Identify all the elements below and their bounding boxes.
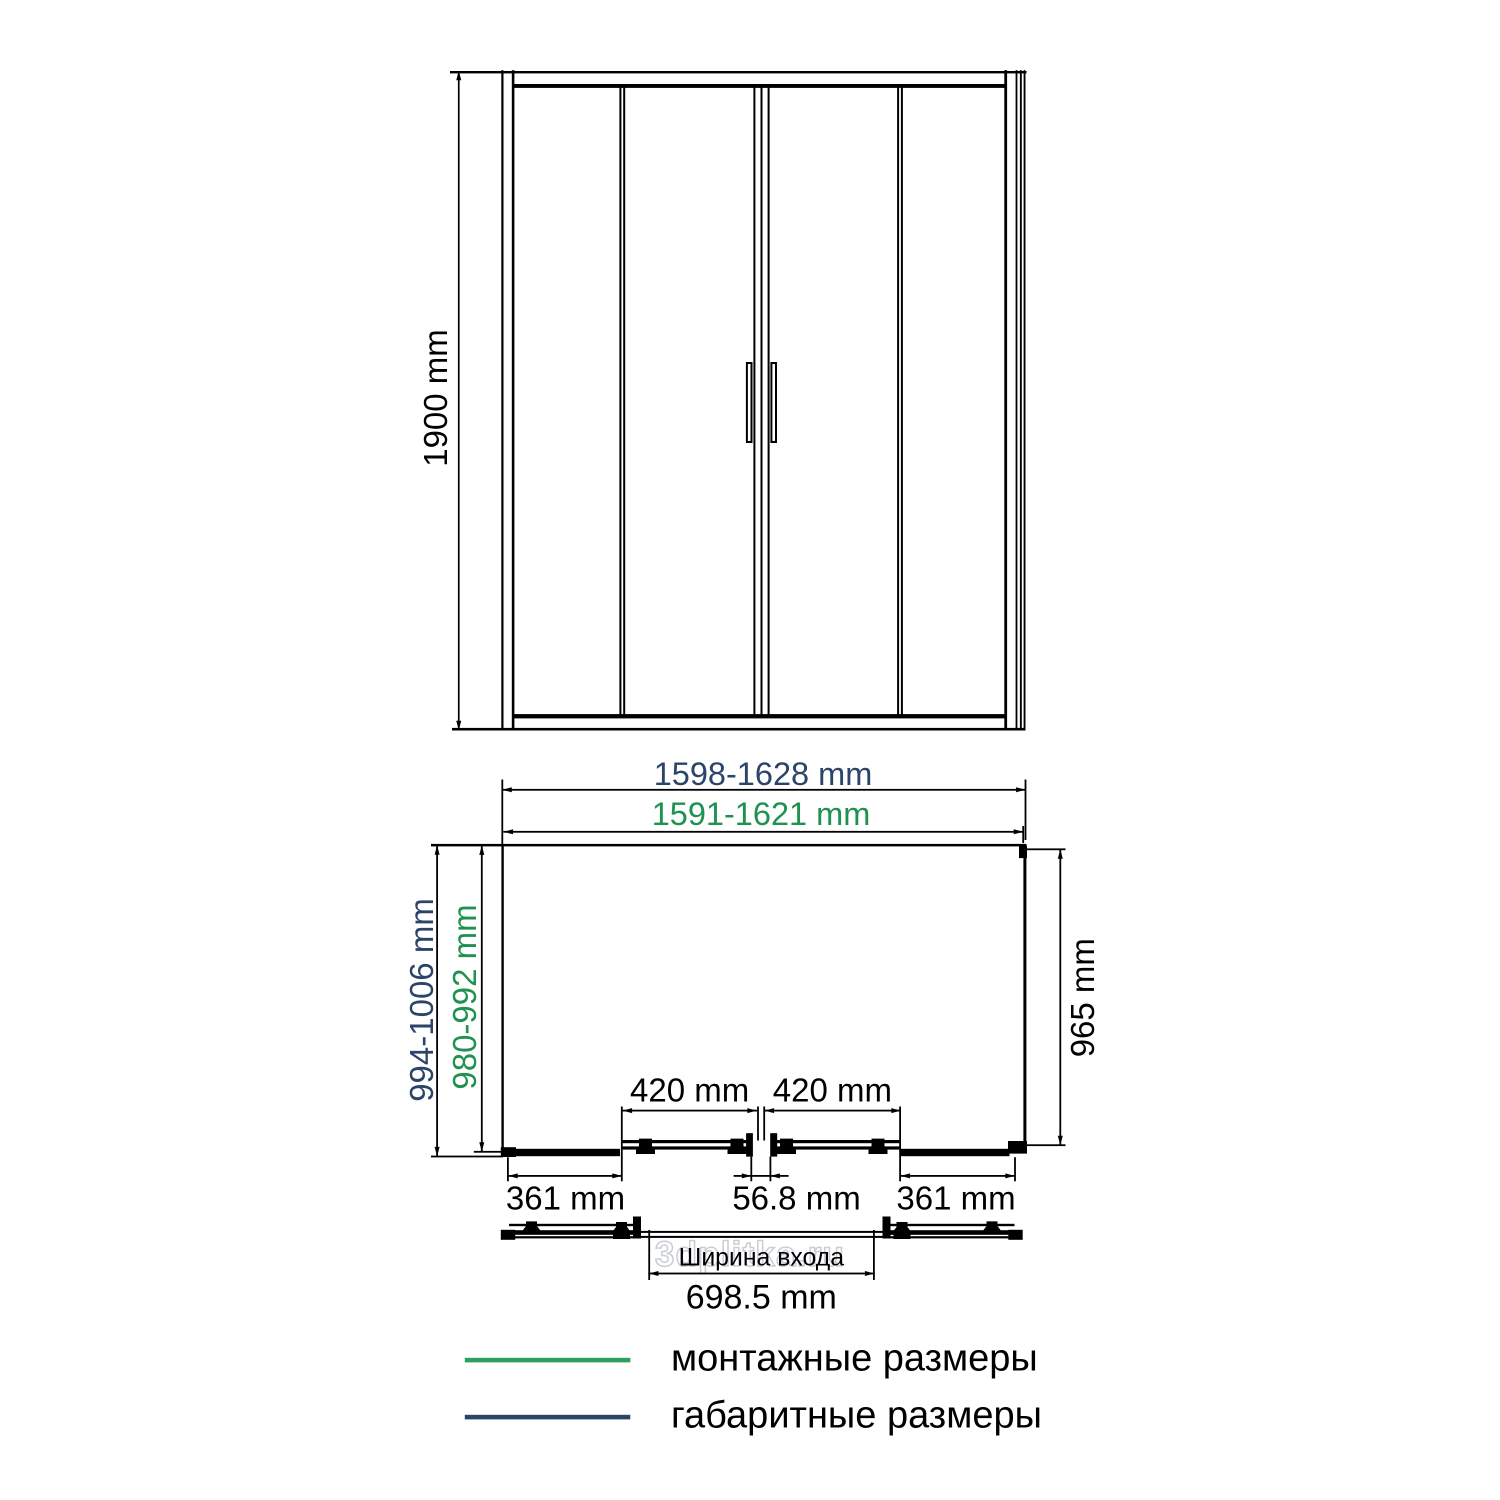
- svg-text:965 mm: 965 mm: [1064, 938, 1101, 1057]
- svg-text:361 mm: 361 mm: [506, 1179, 625, 1216]
- svg-text:1591-1621 mm: 1591-1621 mm: [652, 796, 871, 832]
- svg-text:1900 mm: 1900 mm: [417, 329, 454, 467]
- svg-text:монтажные размеры: монтажные размеры: [671, 1338, 1038, 1380]
- svg-text:56.8 mm: 56.8 mm: [732, 1179, 860, 1216]
- svg-text:361 mm: 361 mm: [896, 1179, 1015, 1216]
- svg-text:420 mm: 420 mm: [630, 1071, 749, 1108]
- svg-text:Ширина входа: Ширина входа: [679, 1245, 845, 1272]
- svg-text:габаритные размеры: габаритные размеры: [671, 1395, 1042, 1437]
- svg-text:980-992 mm: 980-992 mm: [446, 904, 483, 1089]
- svg-text:1598-1628 mm: 1598-1628 mm: [654, 756, 873, 792]
- svg-text:994-1006 mm: 994-1006 mm: [403, 898, 440, 1102]
- svg-text:698.5 mm: 698.5 mm: [686, 1279, 837, 1317]
- svg-text:420 mm: 420 mm: [773, 1071, 892, 1108]
